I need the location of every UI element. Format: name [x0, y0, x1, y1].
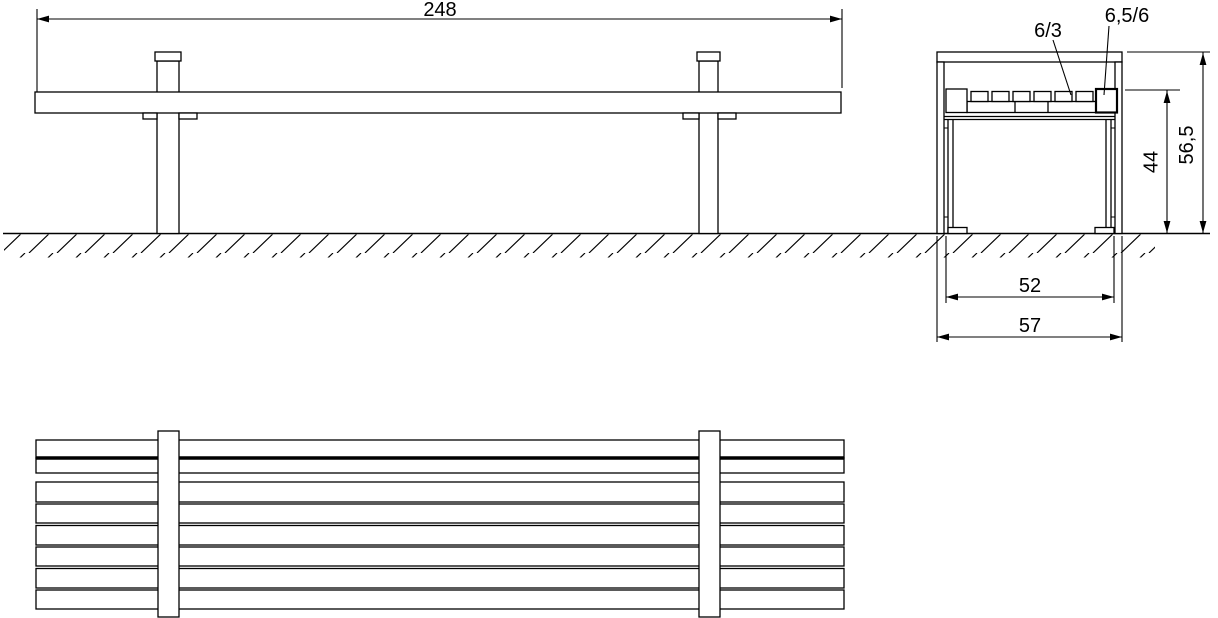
side-middle-slat: [992, 92, 1009, 102]
dim-overall-height-label: 56,5: [1176, 126, 1198, 165]
side-top-beam: [937, 52, 1122, 62]
dim-44-arrow-bottom: [1164, 221, 1171, 233]
side-slat-support-rail: [967, 102, 1096, 113]
dim-56-5-arrow-bottom: [1200, 221, 1207, 233]
ground: [3, 234, 1210, 258]
dim-end-slat-section: 6,5/6: [1104, 5, 1149, 95]
front-left-leg-cap: [155, 52, 181, 61]
side-view: [937, 52, 1122, 234]
dim-overall-depth-label: 57: [1019, 315, 1041, 337]
side-end-slat-left: [946, 89, 967, 113]
side-middle-slats: [971, 92, 1093, 102]
side-left-leg: [944, 120, 953, 234]
top-view: [36, 431, 844, 617]
dim-52-arrow-left: [946, 294, 958, 301]
front-right-leg-bracket-right: [718, 113, 736, 119]
side-left-foot: [948, 228, 967, 234]
dim-leg-span-label: 52: [1019, 275, 1041, 297]
front-left-leg-bracket-left: [143, 113, 157, 119]
dim-middle-slat-label: 6/3: [1034, 20, 1062, 42]
top-slat-1: [36, 440, 844, 458]
dim-44-arrow-top: [1164, 91, 1171, 103]
side-middle-slat: [1055, 92, 1072, 102]
dim-57-arrow-left: [937, 334, 949, 341]
drawing-sheet: 248 6/3 6,5/6 44 56,5: [0, 0, 1218, 618]
front-right-leg-bracket-left: [683, 113, 699, 119]
bench-technical-drawing: 248 6/3 6,5/6 44 56,5: [0, 0, 1218, 618]
dim-56-5-arrow-top: [1200, 53, 1207, 65]
top-slat-8: [36, 590, 844, 609]
top-right-crossbeam: [699, 431, 720, 617]
side-middle-slat: [1013, 92, 1030, 102]
front-seat-board: [35, 92, 841, 113]
front-view: [35, 52, 841, 234]
dim-end-slat-label: 6,5/6: [1105, 5, 1149, 27]
dim-248-arrow-left: [37, 16, 49, 23]
ground-hatching: [4, 235, 1155, 258]
dimensions: 248 6/3 6,5/6 44 56,5: [37, 0, 1210, 342]
side-left-rail: [937, 62, 944, 234]
dim-seat-height-label: 44: [1141, 151, 1163, 173]
top-left-crossbeam: [158, 431, 179, 617]
top-slat-5: [36, 526, 844, 546]
dim-52-arrow-right: [1102, 294, 1114, 301]
dim-57-arrow-right: [1110, 334, 1122, 341]
top-slat-7: [36, 569, 844, 589]
front-left-leg-bracket-right: [179, 113, 197, 119]
dim-248-arrow-right: [830, 16, 842, 23]
top-slat-2: [36, 458, 844, 473]
side-right-rail: [1115, 62, 1122, 234]
side-end-slat-right-highlighted: [1096, 89, 1117, 113]
side-right-leg: [1106, 120, 1115, 234]
front-left-leg: [157, 61, 179, 234]
side-middle-slat: [971, 92, 988, 102]
leader-6-3: [1053, 40, 1071, 95]
top-slat-6: [36, 547, 844, 566]
side-middle-slat: [1034, 92, 1051, 102]
front-right-leg: [699, 61, 718, 234]
side-right-foot: [1095, 228, 1114, 234]
side-middle-slat: [1076, 92, 1093, 102]
dim-overall-length-label: 248: [423, 0, 456, 21]
top-slat-4: [36, 504, 844, 523]
dim-seat-height: 44: [1125, 90, 1180, 234]
front-right-leg-cap: [697, 52, 720, 61]
dim-overall-height: 56,5: [1127, 52, 1210, 234]
top-slat-3: [36, 482, 844, 502]
